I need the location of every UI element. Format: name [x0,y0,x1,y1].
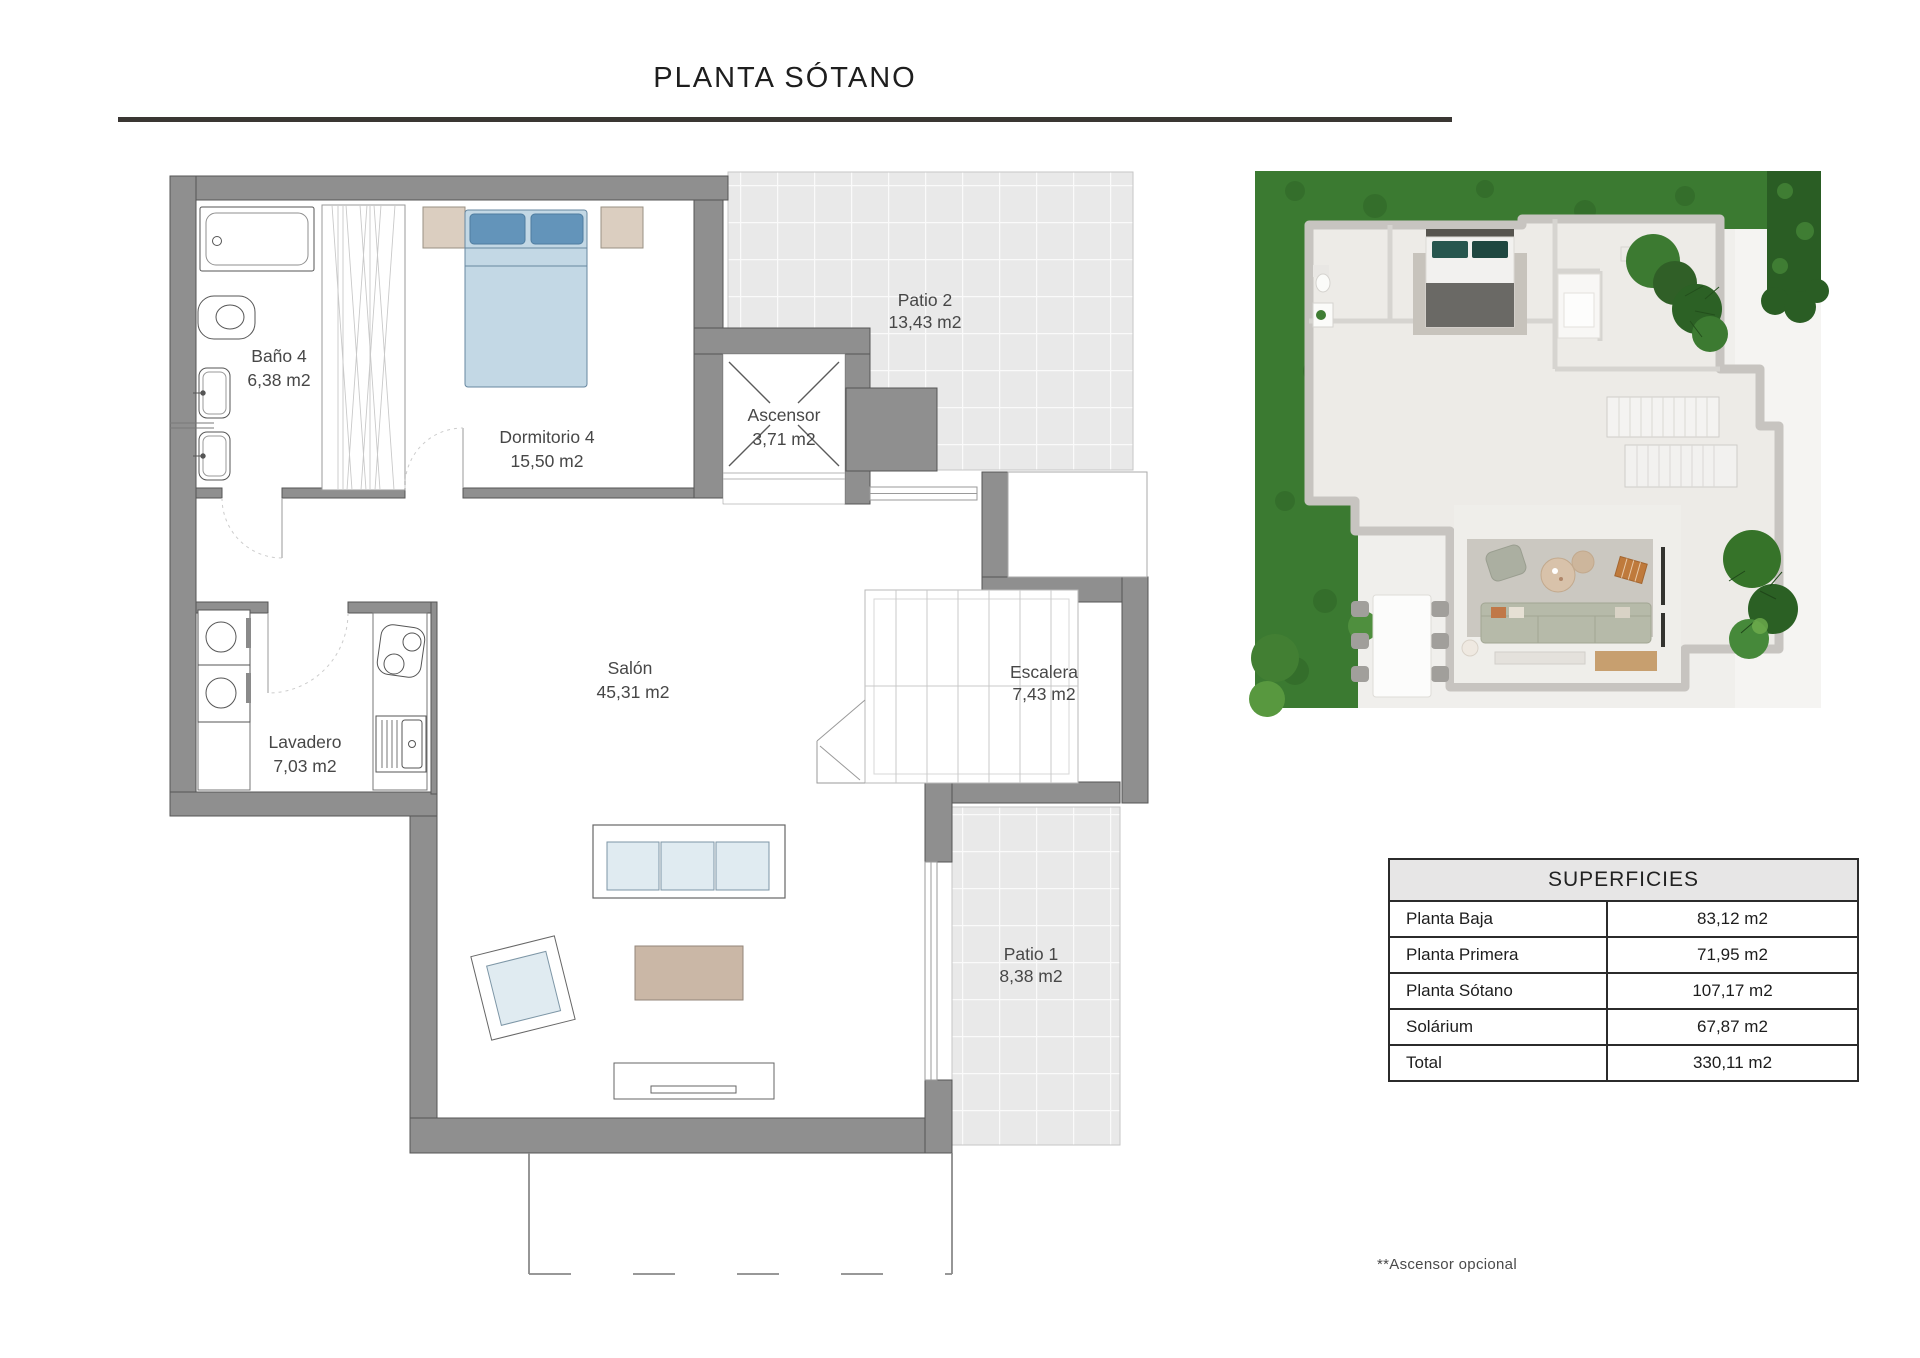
room-area-dormitorio4: 15,50 m2 [511,451,584,471]
sofa [593,825,785,898]
table-row: Planta Sótano 107,17 m2 [1390,974,1857,1010]
room-label-lavadero: Lavadero [269,732,342,752]
room-label-escalera: Escalera [1010,662,1078,682]
row-label: Planta Sótano [1390,974,1608,1008]
render-bedroom [1413,229,1527,335]
toilet [198,296,255,339]
tv-cabinet [614,1063,774,1099]
nightstand-left [423,207,465,248]
window-patio2 [870,487,977,500]
footnote-ascensor-opcional: **Ascensor opcional [1377,1256,1517,1273]
superficies-table: SUPERFICIES Planta Baja 83,12 m2 Planta … [1388,858,1859,1082]
room-area-bano4: 6,38 m2 [247,370,310,390]
room-label-bano4: Baño 4 [251,346,307,366]
wardrobe [322,205,405,490]
laundry-counter [373,613,427,790]
row-value: 330,11 m2 [1608,1046,1857,1080]
render-3d-top-view [1249,171,1829,717]
room-label-ascensor: Ascensor [748,405,821,425]
bathtub [200,207,314,271]
row-value: 67,87 m2 [1608,1010,1857,1044]
room-area-ascensor: 3,71 m2 [752,429,815,449]
sink-2 [193,432,230,480]
room-label-patio1: Patio 1 [1004,944,1058,964]
room-label-patio2: Patio 2 [898,290,952,310]
room-label-salon: Salón [608,658,653,678]
bed [423,207,643,387]
render-dining [1351,595,1449,697]
room-area-patio1: 8,38 m2 [999,966,1062,986]
washer-column [198,610,251,790]
row-value: 107,17 m2 [1608,974,1857,1008]
sink-1 [193,368,230,418]
room-area-lavadero: 7,03 m2 [273,756,336,776]
superficies-table-title: SUPERFICIES [1390,860,1857,902]
render-niche [1558,274,1600,338]
row-label: Solárium [1390,1010,1608,1044]
floor-plan: Baño 4 6,38 m2 Dormitorio 4 15,50 m2 Asc… [0,0,1920,1358]
table-row: Planta Baja 83,12 m2 [1390,902,1857,938]
porch-outline [529,1153,952,1274]
table-row: Planta Primera 71,95 m2 [1390,938,1857,974]
table-row: Solárium 67,87 m2 [1390,1010,1857,1046]
row-value: 83,12 m2 [1608,902,1857,936]
room-area-patio2: 13,43 m2 [889,312,962,332]
room-area-escalera: 7,43 m2 [1012,684,1075,704]
room-label-dormitorio4: Dormitorio 4 [499,427,595,447]
row-label: Total [1390,1046,1608,1080]
row-label: Planta Baja [1390,902,1608,936]
table-row: Total 330,11 m2 [1390,1046,1857,1080]
storage-niche [1008,472,1147,577]
nightstand-right [601,207,643,248]
row-label: Planta Primera [1390,938,1608,972]
hedge-top-right [1761,171,1829,323]
row-value: 71,95 m2 [1608,938,1857,972]
armchair [471,936,575,1040]
coffee-table [635,946,743,1000]
room-area-salon: 45,31 m2 [597,682,670,702]
window-patio1 [925,862,937,1080]
